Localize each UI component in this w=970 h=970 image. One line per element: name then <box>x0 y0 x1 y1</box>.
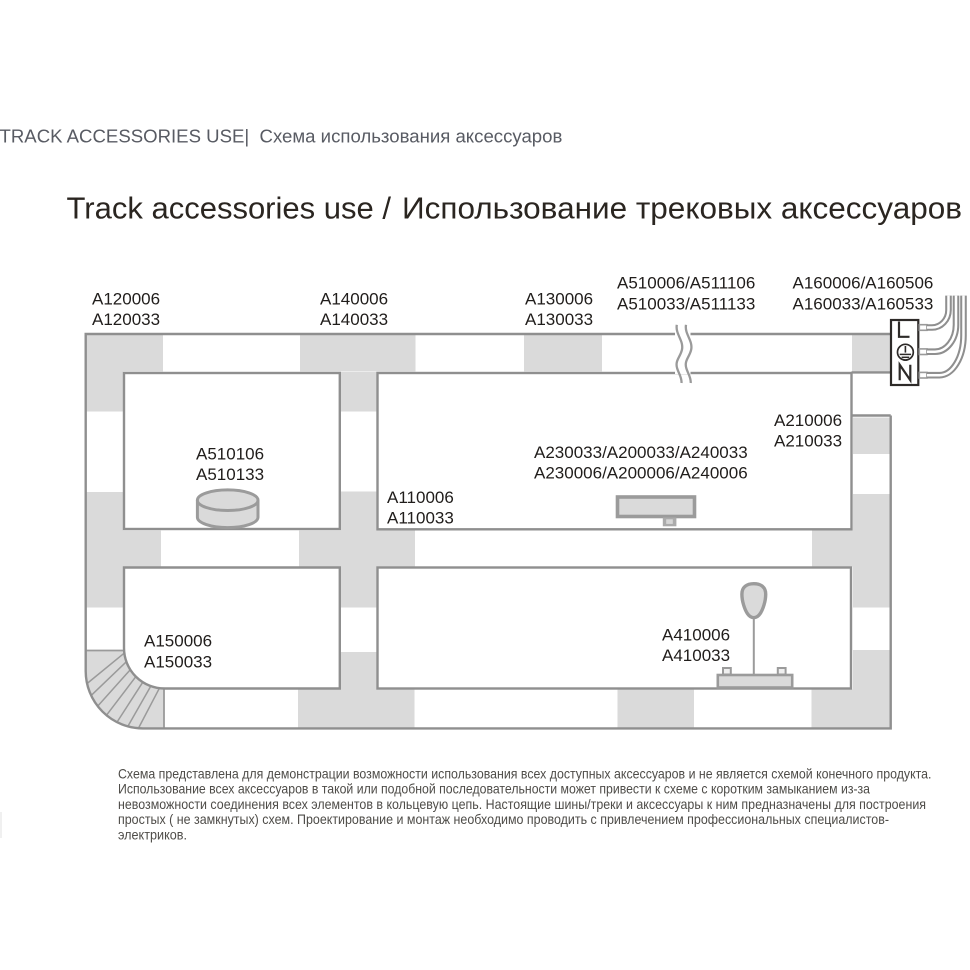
svg-text:электриков.: электриков. <box>118 827 187 842</box>
svg-text:A210006: A210006 <box>774 411 842 430</box>
svg-text:A410033: A410033 <box>662 646 730 665</box>
svg-text:простых ( не замкнутых) схем.: простых ( не замкнутых) схем. Проектиров… <box>118 812 889 827</box>
svg-text:A110033: A110033 <box>387 508 454 527</box>
svg-text:A130006: A130006 <box>525 290 593 309</box>
svg-text:A210033: A210033 <box>774 432 842 451</box>
svg-text:A150033: A150033 <box>144 653 212 672</box>
svg-text:Track accessories use /: Track accessories use / <box>67 190 392 225</box>
svg-text:A120006: A120006 <box>92 290 160 309</box>
svg-text:A160033/A160533: A160033/A160533 <box>793 295 934 314</box>
svg-text:невозможности соединения всех: невозможности соединения всех элементов … <box>118 797 926 812</box>
svg-text:Схема представлена для демонст: Схема представлена для демонстрации возм… <box>118 767 932 782</box>
svg-text:A510033/A511133: A510033/A511133 <box>617 295 755 314</box>
svg-text:A140006: A140006 <box>320 290 388 309</box>
svg-text:A510133: A510133 <box>196 465 264 484</box>
svg-text:A150006: A150006 <box>144 632 212 651</box>
svg-text:TRACK ACCESSORIES USE| Схема: TRACK ACCESSORIES USE| Схема использован… <box>0 126 562 147</box>
svg-text:A510106: A510106 <box>196 444 264 463</box>
svg-text:A140033: A140033 <box>320 310 388 329</box>
svg-text:Использование всех аксессуаров: Использование всех аксессуаров в такой и… <box>118 782 870 797</box>
svg-text:A510006/A511106: A510006/A511106 <box>617 274 755 293</box>
svg-text:A110006: A110006 <box>387 488 454 507</box>
svg-text:A230033/A200033/A240033: A230033/A200033/A240033 <box>534 443 748 462</box>
svg-text:A160006/A160506: A160006/A160506 <box>793 274 934 293</box>
svg-text:A230006/A200006/A240006: A230006/A200006/A240006 <box>534 464 748 483</box>
svg-text:Использование трековых аксессу: Использование трековых аксессуаров <box>402 190 962 225</box>
svg-text:A130033: A130033 <box>525 310 593 329</box>
svg-text:A120033: A120033 <box>92 310 160 329</box>
svg-text:A410006: A410006 <box>662 625 730 644</box>
